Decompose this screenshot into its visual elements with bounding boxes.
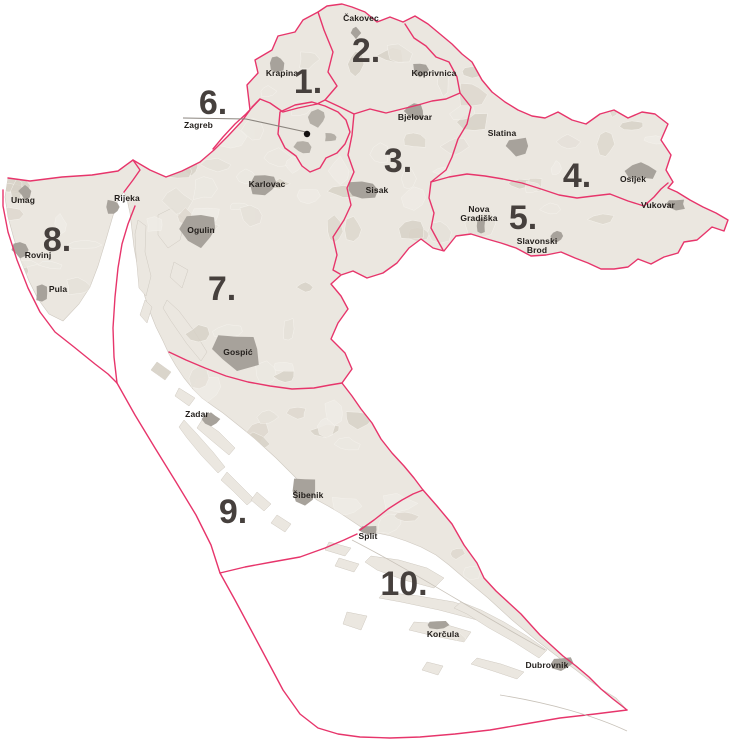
district-number-10: 10. xyxy=(380,565,427,603)
city-label: Karlovac xyxy=(249,179,286,189)
terrain-patch xyxy=(649,36,659,43)
terrain-patch xyxy=(668,45,680,64)
terrain-patch xyxy=(376,646,401,668)
terrain-patch xyxy=(669,122,688,142)
terrain-patch xyxy=(512,576,522,589)
terrain-patch xyxy=(151,423,169,447)
city-label: Šibenik xyxy=(293,489,324,500)
city-label: Gradiška xyxy=(460,213,497,223)
zagreb-dot xyxy=(304,131,310,137)
terrain-patch xyxy=(602,612,625,625)
terrain-patch xyxy=(93,296,112,316)
city-label: Čakovec xyxy=(343,12,379,23)
terrain-patch xyxy=(384,418,407,427)
terrain-patch xyxy=(150,357,175,384)
city-label: Dubrovnik xyxy=(526,660,569,670)
terrain-patch xyxy=(675,118,693,127)
terrain-patch xyxy=(567,603,582,619)
district-border xyxy=(113,206,135,383)
district-number-1: 1. xyxy=(294,63,322,101)
island-shape xyxy=(471,658,524,679)
terrain-patch xyxy=(274,362,294,371)
map-canvas: Čakovec Krapina Koprivnica Bjelovar Slat… xyxy=(0,0,731,750)
island-shape xyxy=(325,542,351,556)
terrain-patch xyxy=(284,318,294,340)
district-number-7: 7. xyxy=(208,270,236,308)
terrain-patch xyxy=(601,621,623,631)
terrain-patch xyxy=(359,354,378,374)
district-number-4: 4. xyxy=(563,157,591,195)
city-label: Umag xyxy=(11,195,35,205)
city-label: Osijek xyxy=(620,174,646,184)
terrain-patch xyxy=(413,692,440,701)
terrain-patch xyxy=(475,493,506,514)
terrain-patch xyxy=(386,378,412,399)
croatia-districts-map: Čakovec Krapina Koprivnica Bjelovar Slat… xyxy=(0,0,731,750)
island-shape xyxy=(175,388,195,406)
city-label: Vukovar xyxy=(641,200,676,210)
terrain-patch xyxy=(147,217,162,232)
district-number-6: 6. xyxy=(199,84,227,122)
island-shape xyxy=(422,662,443,675)
terrain-patch xyxy=(628,13,655,39)
island-shape xyxy=(335,558,359,572)
district-number-8: 8. xyxy=(43,221,71,259)
terrain-patch xyxy=(157,150,177,164)
city-label: Koprivnica xyxy=(412,68,457,78)
city-label: Rijeka xyxy=(114,193,140,203)
district-number-3: 3. xyxy=(384,142,412,180)
city-label: Slatina xyxy=(488,128,517,138)
district-number-5: 5. xyxy=(509,199,537,237)
city-marker xyxy=(36,284,47,301)
terrain-patch xyxy=(228,26,240,35)
terrain-patch xyxy=(106,297,121,304)
city-label: Split xyxy=(359,531,378,541)
island-shape xyxy=(251,492,271,511)
terrain-patch xyxy=(509,87,534,105)
island-shape xyxy=(271,515,291,532)
terrain-patch xyxy=(608,23,631,42)
city-label: Bjelovar xyxy=(398,112,433,122)
city-label: Ogulin xyxy=(187,225,215,235)
terrain-patch xyxy=(394,390,406,400)
district-number-9: 9. xyxy=(219,493,247,531)
city-label: Pula xyxy=(49,284,68,294)
terrain-patch xyxy=(400,697,411,717)
terrain-patch xyxy=(159,92,175,115)
terrain-patch xyxy=(528,103,543,109)
terrain-patch xyxy=(464,566,480,580)
city-label: Sisak xyxy=(366,185,389,195)
district-number-2: 2. xyxy=(352,32,380,70)
island-shape xyxy=(343,612,367,630)
terrain-patch xyxy=(155,37,171,57)
city-label: Korčula xyxy=(427,629,460,639)
city-label: Brod xyxy=(527,245,547,255)
terrain-patch xyxy=(105,255,115,264)
city-label: Zadar xyxy=(185,409,209,419)
city-label: Gospić xyxy=(223,347,253,357)
terrain-patch xyxy=(669,132,708,142)
terrain-patch xyxy=(1,296,19,311)
terrain-patch xyxy=(246,441,262,455)
terrain-patch xyxy=(144,404,160,418)
